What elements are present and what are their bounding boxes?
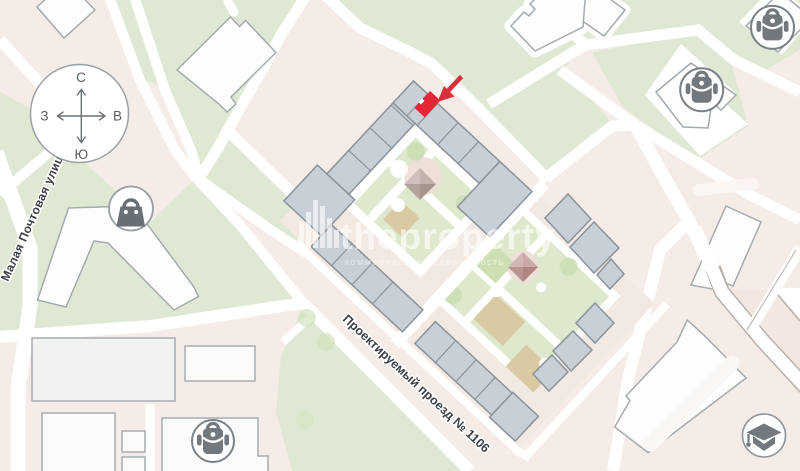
svg-text:З: З: [40, 109, 48, 124]
svg-text:theproperty: theproperty: [340, 216, 557, 257]
svg-text:Ю: Ю: [74, 147, 88, 162]
svg-text:В: В: [113, 109, 122, 124]
svg-text:С: С: [76, 70, 86, 85]
svg-text:коммерческая недвижимость: коммерческая недвижимость: [345, 257, 505, 267]
